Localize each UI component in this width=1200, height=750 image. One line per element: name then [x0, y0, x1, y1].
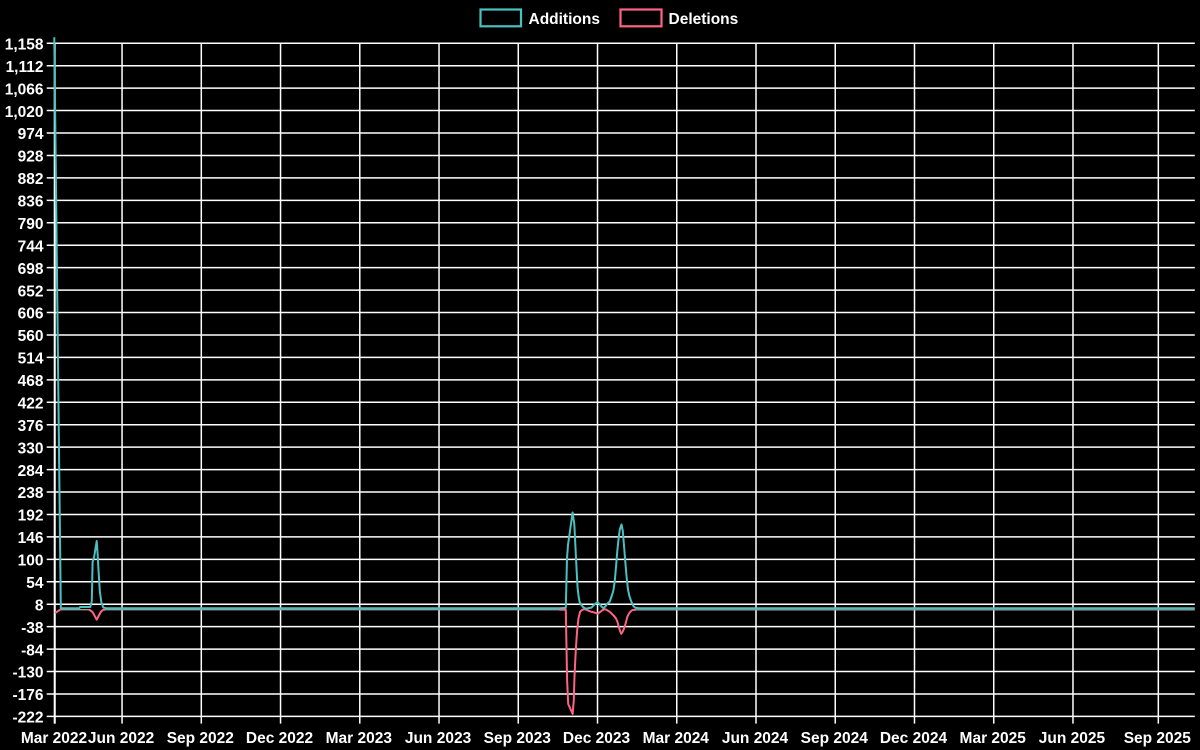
svg-text:652: 652 — [18, 283, 44, 300]
svg-text:284: 284 — [18, 463, 44, 480]
svg-text:Jun 2023: Jun 2023 — [405, 730, 472, 747]
svg-text:146: 146 — [18, 530, 44, 547]
svg-text:Sep 2025: Sep 2025 — [1124, 730, 1192, 747]
svg-text:-38: -38 — [21, 620, 44, 637]
svg-text:Jun 2022: Jun 2022 — [88, 730, 154, 747]
svg-text:836: 836 — [18, 194, 44, 211]
svg-text:1,066: 1,066 — [5, 81, 44, 98]
svg-text:560: 560 — [18, 328, 44, 345]
svg-text:-222: -222 — [12, 710, 43, 727]
svg-text:Sep 2022: Sep 2022 — [167, 730, 234, 747]
svg-text:54: 54 — [26, 575, 44, 592]
svg-text:Jun 2025: Jun 2025 — [1039, 730, 1106, 747]
svg-text:882: 882 — [18, 171, 44, 188]
svg-text:100: 100 — [18, 553, 44, 570]
svg-text:468: 468 — [18, 373, 44, 390]
svg-text:1,020: 1,020 — [5, 104, 44, 121]
svg-text:606: 606 — [18, 306, 44, 323]
svg-text:8: 8 — [35, 597, 44, 614]
svg-text:Deletions: Deletions — [669, 11, 739, 28]
svg-text:Mar 2025: Mar 2025 — [960, 730, 1027, 747]
svg-text:1,112: 1,112 — [6, 59, 44, 76]
svg-text:Jun 2024: Jun 2024 — [722, 730, 789, 747]
svg-text:974: 974 — [18, 126, 44, 143]
svg-text:Additions: Additions — [529, 11, 600, 28]
svg-text:Dec 2024: Dec 2024 — [880, 730, 948, 747]
svg-text:1,158: 1,158 — [5, 36, 44, 53]
svg-text:514: 514 — [18, 351, 44, 368]
svg-text:744: 744 — [18, 238, 44, 255]
svg-text:330: 330 — [18, 440, 44, 457]
svg-text:422: 422 — [18, 395, 44, 412]
svg-text:192: 192 — [18, 508, 44, 525]
svg-text:698: 698 — [18, 261, 44, 278]
svg-text:Dec 2023: Dec 2023 — [563, 730, 631, 747]
svg-text:Mar 2023: Mar 2023 — [326, 730, 393, 747]
svg-text:-84: -84 — [21, 642, 44, 659]
svg-text:-176: -176 — [12, 687, 43, 704]
svg-text:-130: -130 — [12, 665, 43, 682]
svg-text:Dec 2022: Dec 2022 — [246, 730, 313, 747]
svg-text:Mar 2022: Mar 2022 — [21, 730, 87, 747]
svg-text:238: 238 — [18, 485, 44, 502]
svg-text:790: 790 — [18, 216, 44, 233]
svg-text:Sep 2023: Sep 2023 — [484, 730, 552, 747]
svg-text:928: 928 — [18, 149, 44, 166]
svg-text:Mar 2024: Mar 2024 — [643, 730, 710, 747]
svg-text:Sep 2024: Sep 2024 — [801, 730, 869, 747]
svg-text:376: 376 — [18, 418, 44, 435]
